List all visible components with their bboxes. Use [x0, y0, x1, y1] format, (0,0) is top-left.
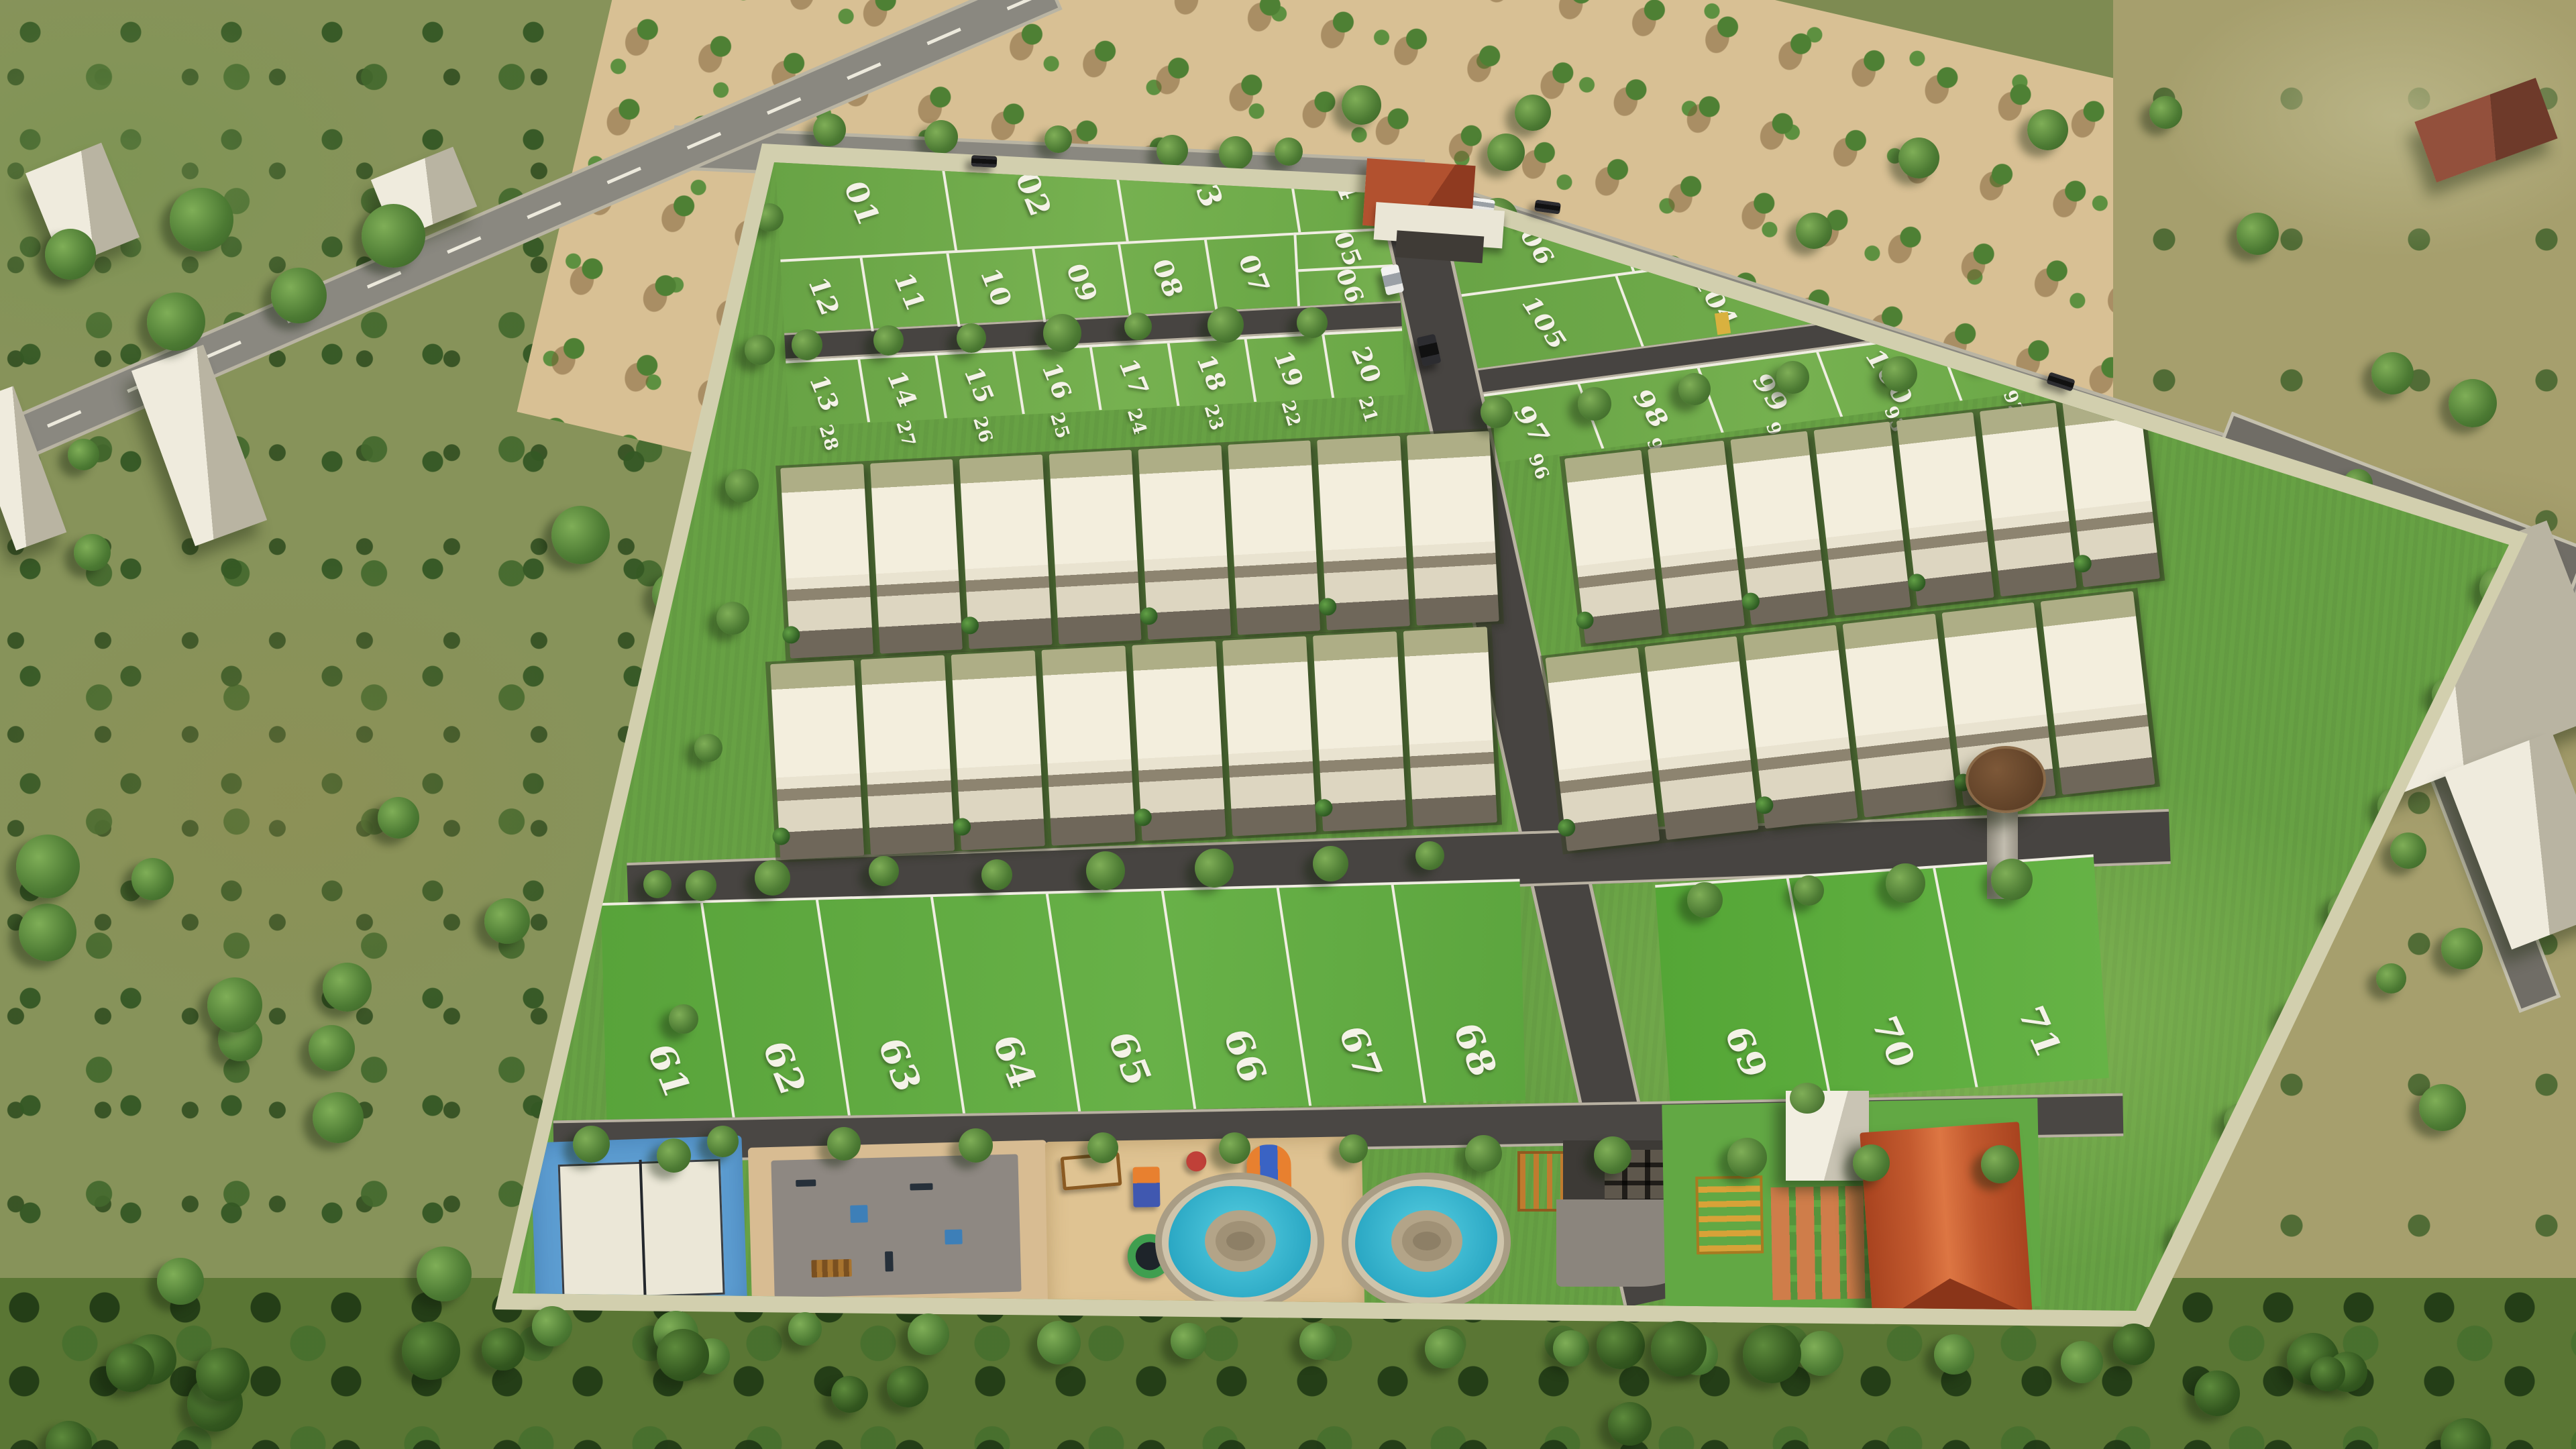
villa-number-25: 25	[1020, 411, 1099, 441]
tree	[1981, 1145, 2019, 1183]
tree	[1157, 135, 1188, 166]
tree	[1886, 863, 1925, 903]
tree	[788, 1312, 822, 1346]
tree	[686, 870, 716, 901]
tree	[1727, 1138, 1767, 1177]
spinner	[1186, 1151, 1207, 1172]
tree	[1044, 125, 1072, 153]
tree	[2441, 928, 2483, 969]
plot-number: 15	[959, 363, 1002, 407]
court-surface	[558, 1159, 725, 1300]
villa-unit	[861, 655, 955, 855]
tree	[1796, 213, 1832, 249]
tree	[1799, 1331, 1843, 1376]
tree	[1275, 138, 1303, 166]
tree	[362, 204, 425, 268]
tree	[170, 188, 233, 252]
tree	[716, 602, 749, 635]
plot-number: 63	[868, 1033, 930, 1096]
tree	[1853, 1144, 1890, 1181]
villa-unit	[1228, 440, 1320, 635]
plot-number: 16	[1036, 359, 1079, 402]
splash-fountain	[1391, 1210, 1462, 1272]
plot-row-69-71: 697071	[1655, 855, 2109, 1109]
tree	[2310, 1356, 2345, 1391]
plot-number: 11	[888, 270, 932, 316]
tree	[74, 534, 111, 571]
tree	[309, 1025, 355, 1071]
tree	[2237, 213, 2279, 255]
tree	[813, 113, 846, 146]
plot-number: 14	[881, 367, 924, 411]
tree	[1207, 307, 1244, 343]
tree	[19, 904, 76, 961]
plot-number: 08	[1146, 256, 1190, 302]
plot-number: 69	[1716, 1021, 1778, 1083]
villa-unit	[959, 454, 1052, 649]
tree	[147, 292, 205, 351]
tree	[45, 229, 96, 280]
tree	[1794, 875, 1824, 906]
tree	[1124, 313, 1152, 340]
tree	[207, 977, 262, 1032]
tree	[573, 1126, 610, 1163]
plot-number: 10	[974, 265, 1018, 311]
plot-number: 71	[2010, 1001, 2072, 1063]
tree	[482, 1328, 525, 1371]
plot-07: 07	[1204, 235, 1301, 313]
tree	[271, 268, 327, 323]
tree	[2371, 352, 2414, 394]
tree	[2419, 1084, 2466, 1131]
plot-number: 27	[892, 418, 919, 449]
tree	[532, 1306, 572, 1346]
plot-number: 64	[983, 1030, 1046, 1093]
villa-number-24: 24	[1097, 407, 1176, 437]
gym-equipment	[796, 1179, 816, 1187]
plot-number: 66	[1214, 1024, 1276, 1087]
villa-unit	[951, 651, 1045, 851]
villa-unit	[870, 459, 963, 653]
villa-unit	[1138, 445, 1231, 639]
plot-number: 05	[1328, 229, 1368, 270]
villa-unit	[1896, 412, 1994, 606]
plot-16: 16	[1012, 347, 1099, 415]
gym-equipment	[910, 1183, 932, 1191]
tree	[1342, 85, 1381, 125]
tree	[1195, 849, 1234, 888]
tree	[313, 1092, 364, 1143]
villa-number-21: 21	[1328, 394, 1407, 425]
car	[971, 155, 998, 168]
tree	[1608, 1402, 1652, 1446]
plot-number: 06	[1330, 266, 1370, 307]
plot-number: 97	[1506, 401, 1556, 447]
tree	[957, 323, 986, 353]
tree	[323, 963, 372, 1012]
villa-unit	[780, 464, 873, 658]
tree	[1465, 1135, 1502, 1172]
tree	[831, 1376, 868, 1413]
villa-unit	[1545, 647, 1660, 851]
villa-unit	[1564, 450, 1662, 644]
tree	[873, 325, 904, 356]
tree	[1678, 373, 1711, 405]
plot-number: 17	[1113, 355, 1156, 398]
tree	[981, 859, 1012, 890]
villa-unit	[1403, 627, 1497, 826]
tree	[1297, 307, 1328, 338]
plot-number: 25	[1046, 410, 1073, 441]
tree	[1415, 841, 1444, 870]
tree	[157, 1258, 204, 1305]
plot-row-61-68: 6162636465666768	[601, 879, 1525, 1124]
plot-number: 19	[1268, 347, 1311, 390]
tree	[1087, 1132, 1118, 1163]
tree	[707, 1126, 739, 1157]
tree	[484, 898, 530, 944]
tree	[196, 1348, 250, 1401]
villa-unit	[1731, 431, 1828, 625]
tree	[887, 1366, 928, 1407]
tree	[1043, 314, 1081, 352]
tree	[1481, 396, 1513, 428]
tree	[745, 335, 775, 365]
villa-unit	[1648, 441, 1745, 635]
tree	[16, 835, 80, 898]
tree	[1934, 1334, 1974, 1375]
plot-number: 70	[1863, 1011, 1925, 1073]
tree	[2376, 963, 2406, 994]
plot-number: 26	[969, 414, 996, 445]
tree	[1687, 882, 1723, 918]
villa-unit	[1222, 636, 1316, 836]
tree	[1086, 851, 1125, 890]
tree	[755, 860, 790, 896]
gym-equipment	[885, 1251, 894, 1271]
plot-number: 18	[1191, 351, 1234, 394]
plot-11: 11	[860, 254, 957, 331]
villa-unit	[1407, 431, 1499, 626]
tree	[2449, 379, 2497, 427]
tree	[1597, 1321, 1645, 1369]
tree	[2149, 96, 2182, 129]
tree	[1171, 1323, 1207, 1359]
plot-number: 20	[1345, 343, 1388, 386]
plot-number: 98	[1625, 385, 1676, 431]
tree	[417, 1246, 472, 1301]
tree	[694, 734, 722, 762]
gym-equipment	[850, 1205, 868, 1223]
plot-15: 15	[934, 352, 1022, 419]
gym-equipment	[945, 1230, 963, 1245]
tree	[1487, 133, 1525, 171]
tree	[1651, 1321, 1707, 1377]
plot-19: 19	[1244, 335, 1332, 402]
tree	[924, 120, 958, 154]
gym-bench	[811, 1259, 852, 1278]
tree	[792, 329, 822, 360]
outdoor-gym	[748, 1140, 1051, 1312]
tree	[1776, 361, 1809, 394]
tree	[1219, 1132, 1250, 1164]
tree	[402, 1322, 460, 1380]
plot-14: 14	[857, 356, 945, 423]
plot-08: 08	[1118, 240, 1215, 318]
plot-17: 17	[1089, 343, 1177, 411]
villa-unit	[1132, 641, 1226, 841]
villa-unit	[2041, 591, 2155, 795]
plot-number: 22	[1277, 398, 1304, 429]
villa-number-23: 23	[1175, 402, 1253, 433]
tree	[2390, 833, 2426, 869]
villa-unit	[770, 660, 864, 860]
tree	[1219, 136, 1252, 170]
plot-number: 65	[1098, 1027, 1161, 1090]
aerial-site-render: 01020304 121110090807 0506 1314151617181…	[0, 0, 2576, 1449]
villa-unit	[1843, 614, 1957, 818]
tree	[1299, 1323, 1336, 1360]
villa-unit	[1042, 645, 1136, 845]
plot-number: 09	[1060, 260, 1104, 307]
villa-row-left-lower	[765, 624, 1502, 863]
plot-09: 09	[1032, 245, 1129, 323]
plot-number: 61	[638, 1039, 700, 1102]
plot-number: 68	[1444, 1018, 1507, 1081]
plot-12: 12	[777, 258, 871, 336]
yellow-pergola	[1695, 1175, 1764, 1254]
tree	[2194, 1371, 2240, 1416]
tree	[378, 797, 419, 839]
plot-18: 18	[1167, 339, 1254, 407]
tree	[1313, 846, 1348, 881]
tree	[1991, 859, 2033, 900]
tree	[1882, 356, 1917, 392]
tree	[1743, 1325, 1801, 1383]
villa-unit	[1980, 402, 2077, 596]
tree	[1578, 387, 1611, 421]
tree	[827, 1127, 861, 1161]
tree	[2061, 1341, 2103, 1383]
villa-unit	[1049, 449, 1141, 644]
plot-number: 24	[1123, 406, 1150, 437]
plot-number: 21	[1354, 394, 1381, 425]
splash-pad	[1342, 1173, 1511, 1311]
villa-number-26: 26	[943, 415, 1022, 445]
tree	[643, 870, 672, 898]
stepping-stones	[1771, 1186, 1871, 1301]
plot-13: 13	[783, 360, 867, 426]
plot-number: 28	[814, 422, 842, 453]
splash-fountain	[1205, 1210, 1276, 1272]
tennis-court	[531, 1136, 748, 1319]
signboard	[1715, 312, 1731, 335]
villa-number-27: 27	[866, 419, 945, 449]
plot-number: 12	[802, 274, 846, 320]
plot-20: 20	[1322, 331, 1409, 398]
plot-number: 01	[837, 177, 888, 229]
tree	[657, 1329, 709, 1381]
plot-number: 23	[1199, 402, 1227, 433]
tree	[1553, 1330, 1589, 1366]
tree	[68, 439, 99, 470]
tree	[551, 506, 610, 564]
tree	[1037, 1321, 1081, 1364]
plot-number: 62	[753, 1036, 815, 1099]
villa-number-28: 28	[789, 423, 867, 453]
tree	[657, 1138, 691, 1173]
tree	[1515, 95, 1551, 131]
tree	[2113, 1324, 2155, 1365]
tree	[1425, 1329, 1464, 1368]
splash-pad	[1155, 1173, 1324, 1311]
tree	[1339, 1134, 1368, 1163]
tree	[131, 858, 174, 900]
villa-unit	[1644, 636, 1759, 840]
tree	[1898, 138, 1939, 178]
plot-number: 07	[1232, 252, 1276, 298]
tree	[669, 1004, 698, 1034]
villa-row-left-upper	[775, 428, 1504, 661]
tree	[2027, 109, 2068, 150]
plot-number: 13	[804, 372, 847, 415]
villa-unit	[1313, 631, 1407, 831]
tree	[106, 1344, 154, 1392]
villa-unit	[1317, 435, 1409, 630]
villa-unit	[1743, 625, 1858, 828]
tree	[1594, 1136, 1631, 1174]
plot-number: 105	[1515, 292, 1574, 353]
tree	[908, 1313, 949, 1355]
tree	[869, 856, 899, 886]
plot-number: 67	[1329, 1021, 1391, 1084]
tree	[959, 1128, 993, 1163]
villa-unit	[1813, 421, 1911, 615]
plot-10: 10	[946, 249, 1043, 327]
water-tank	[1966, 746, 2046, 813]
tree	[725, 469, 759, 502]
gym-surface	[771, 1154, 1021, 1298]
villa-number-22: 22	[1251, 398, 1330, 429]
